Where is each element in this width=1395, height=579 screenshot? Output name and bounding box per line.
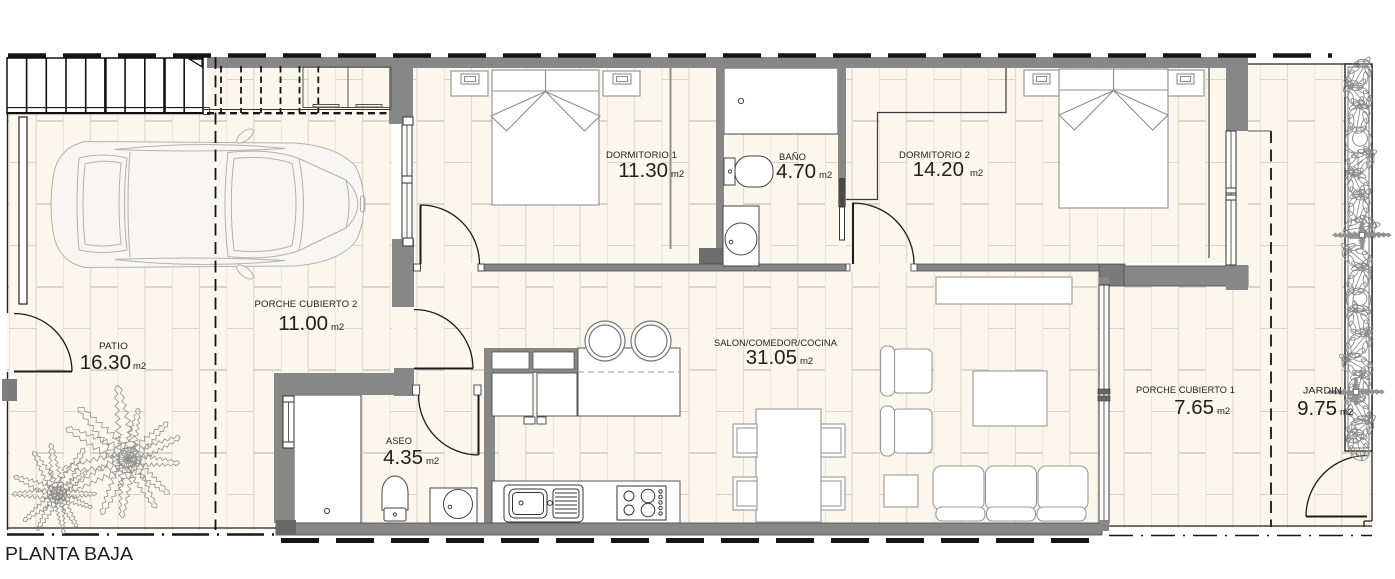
svg-text:m2: m2 xyxy=(133,361,146,372)
svg-text:m2: m2 xyxy=(426,456,439,467)
svg-text:m2: m2 xyxy=(1340,407,1353,418)
svg-text:9.75: 9.75 xyxy=(1297,397,1337,420)
svg-text:m2: m2 xyxy=(671,169,684,180)
svg-text:m2: m2 xyxy=(331,322,344,333)
svg-text:m2: m2 xyxy=(970,168,983,179)
svg-text:PLANTA BAJA: PLANTA BAJA xyxy=(5,543,134,564)
svg-text:m2: m2 xyxy=(800,356,813,367)
svg-text:4.35: 4.35 xyxy=(383,446,423,469)
svg-text:31.05: 31.05 xyxy=(746,346,797,369)
svg-text:11.30: 11.30 xyxy=(618,159,668,182)
svg-text:11.00: 11.00 xyxy=(278,312,328,335)
svg-text:JARDIN: JARDIN xyxy=(1303,386,1342,397)
svg-text:16.30: 16.30 xyxy=(80,351,131,374)
svg-text:PORCHE CUBIERTO 2: PORCHE CUBIERTO 2 xyxy=(255,299,358,310)
svg-text:m2: m2 xyxy=(1217,406,1230,417)
svg-text:4.70: 4.70 xyxy=(776,160,816,183)
svg-text:7.65: 7.65 xyxy=(1174,396,1214,419)
svg-text:14.20: 14.20 xyxy=(913,158,964,181)
svg-text:PORCHE CUBIERTO 1: PORCHE CUBIERTO 1 xyxy=(1136,385,1235,396)
svg-text:m2: m2 xyxy=(819,170,832,181)
